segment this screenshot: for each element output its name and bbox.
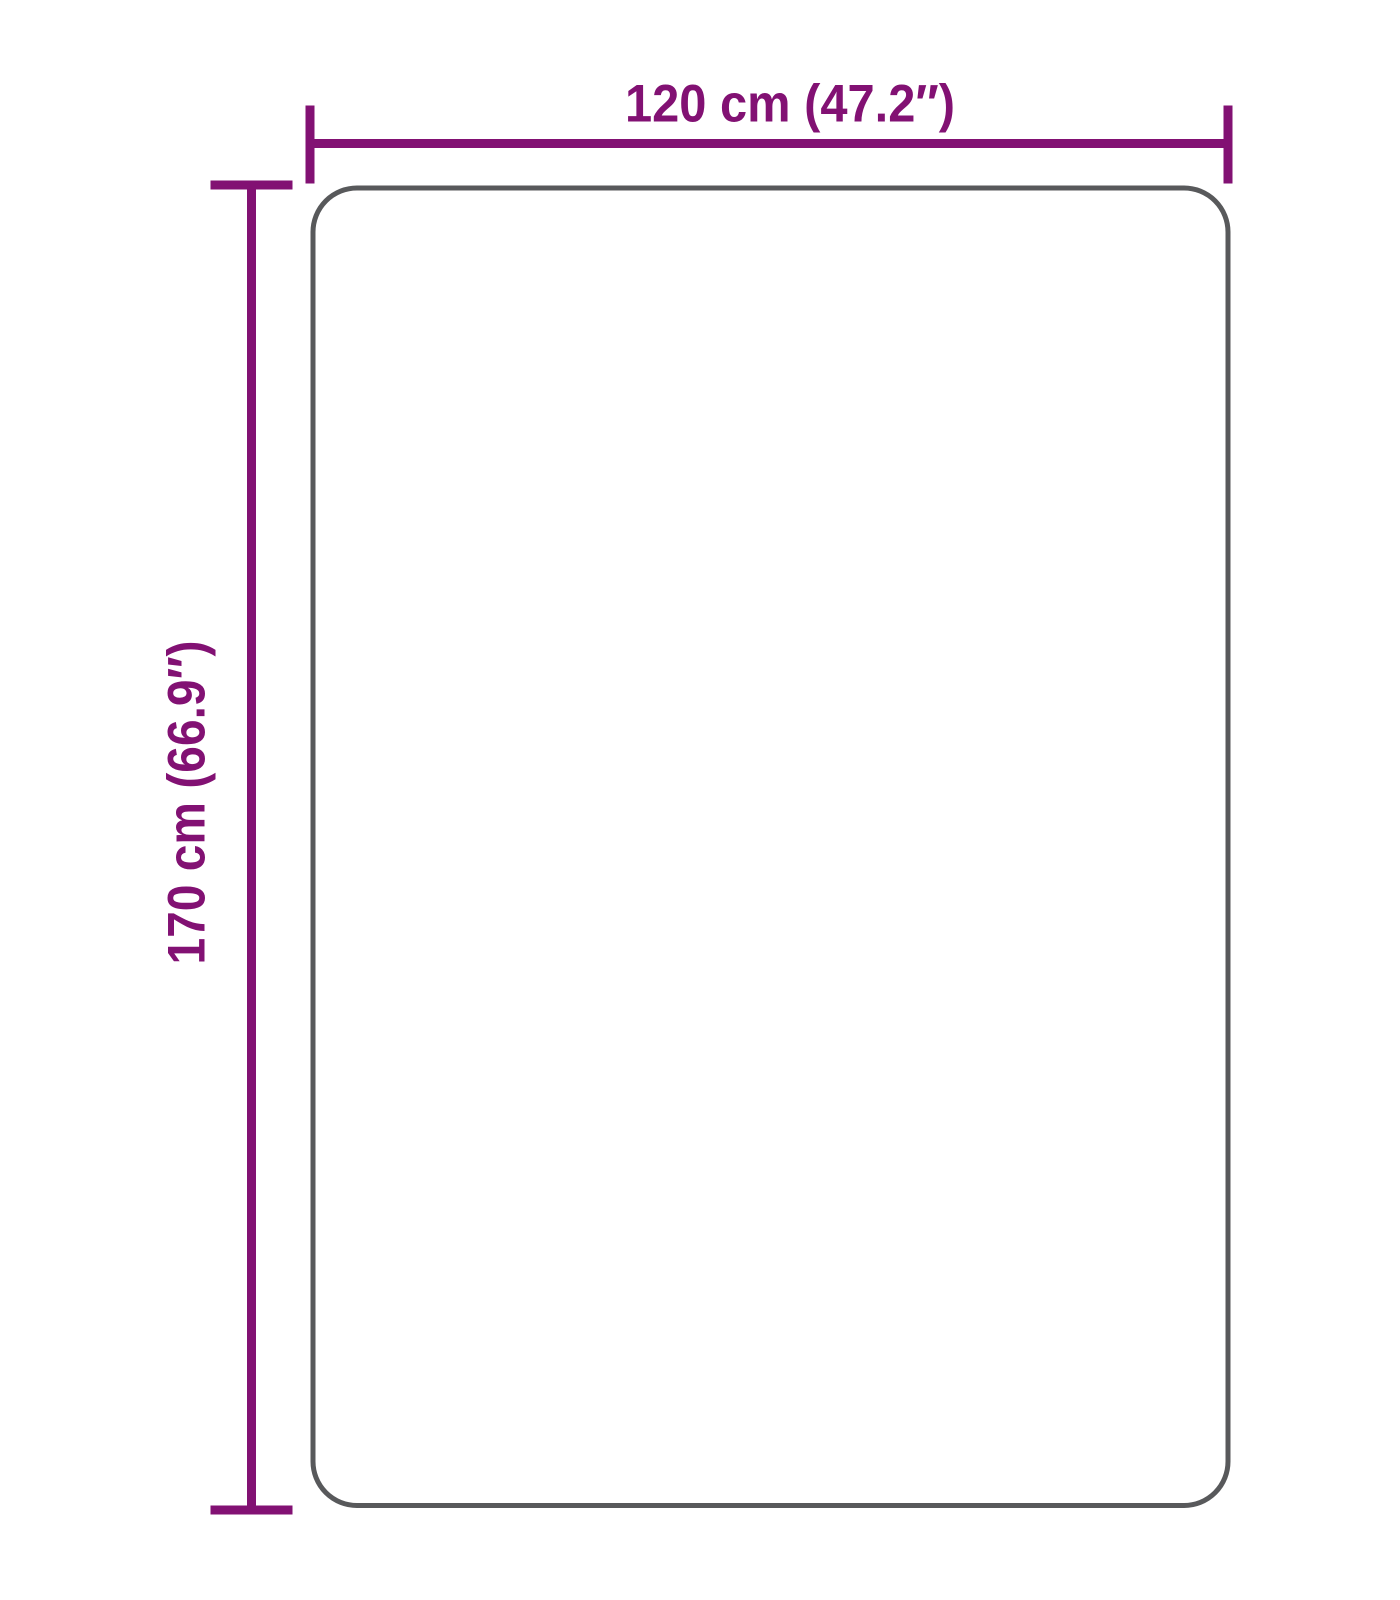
- svg-text:170 cm (66.9″): 170 cm (66.9″): [158, 641, 217, 965]
- svg-text:120 cm (47.2″): 120 cm (47.2″): [625, 74, 955, 133]
